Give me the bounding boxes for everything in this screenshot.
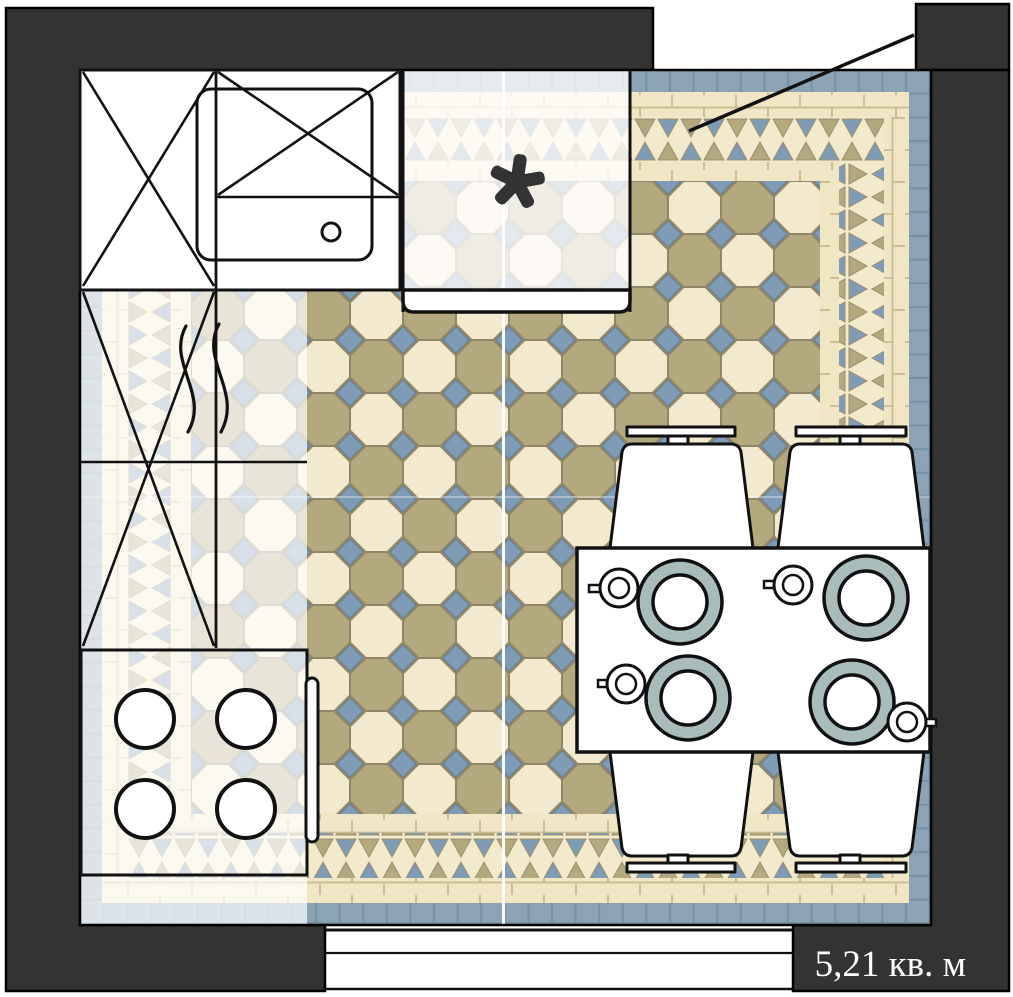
plate bbox=[646, 656, 730, 740]
kitchen-floor-plan: 5,21 кв. м bbox=[0, 0, 1013, 997]
oven-handle bbox=[306, 678, 318, 842]
chair-seat bbox=[778, 444, 924, 548]
chair-bottom-right bbox=[778, 752, 924, 872]
burner bbox=[217, 690, 275, 748]
dining-table bbox=[577, 548, 936, 752]
plate bbox=[824, 556, 908, 640]
chair-seat bbox=[778, 752, 924, 856]
burner bbox=[116, 690, 174, 748]
plate bbox=[638, 560, 722, 644]
burner bbox=[217, 780, 275, 838]
chair-top-left bbox=[610, 427, 753, 548]
counter-run-overlay bbox=[80, 290, 307, 925]
burner bbox=[116, 780, 174, 838]
area-label: 5,21 кв. м bbox=[815, 944, 966, 985]
chair-backrest bbox=[627, 863, 735, 872]
wall-pier-top-right bbox=[916, 4, 1009, 70]
plate bbox=[810, 660, 894, 744]
chair-seat bbox=[610, 444, 753, 548]
chair-bottom-left bbox=[610, 752, 753, 872]
chair-backrest bbox=[796, 863, 906, 872]
chair-seat bbox=[610, 752, 753, 856]
window-sill bbox=[403, 290, 630, 312]
door-opening bbox=[325, 927, 793, 989]
chair-top-right bbox=[778, 427, 924, 548]
